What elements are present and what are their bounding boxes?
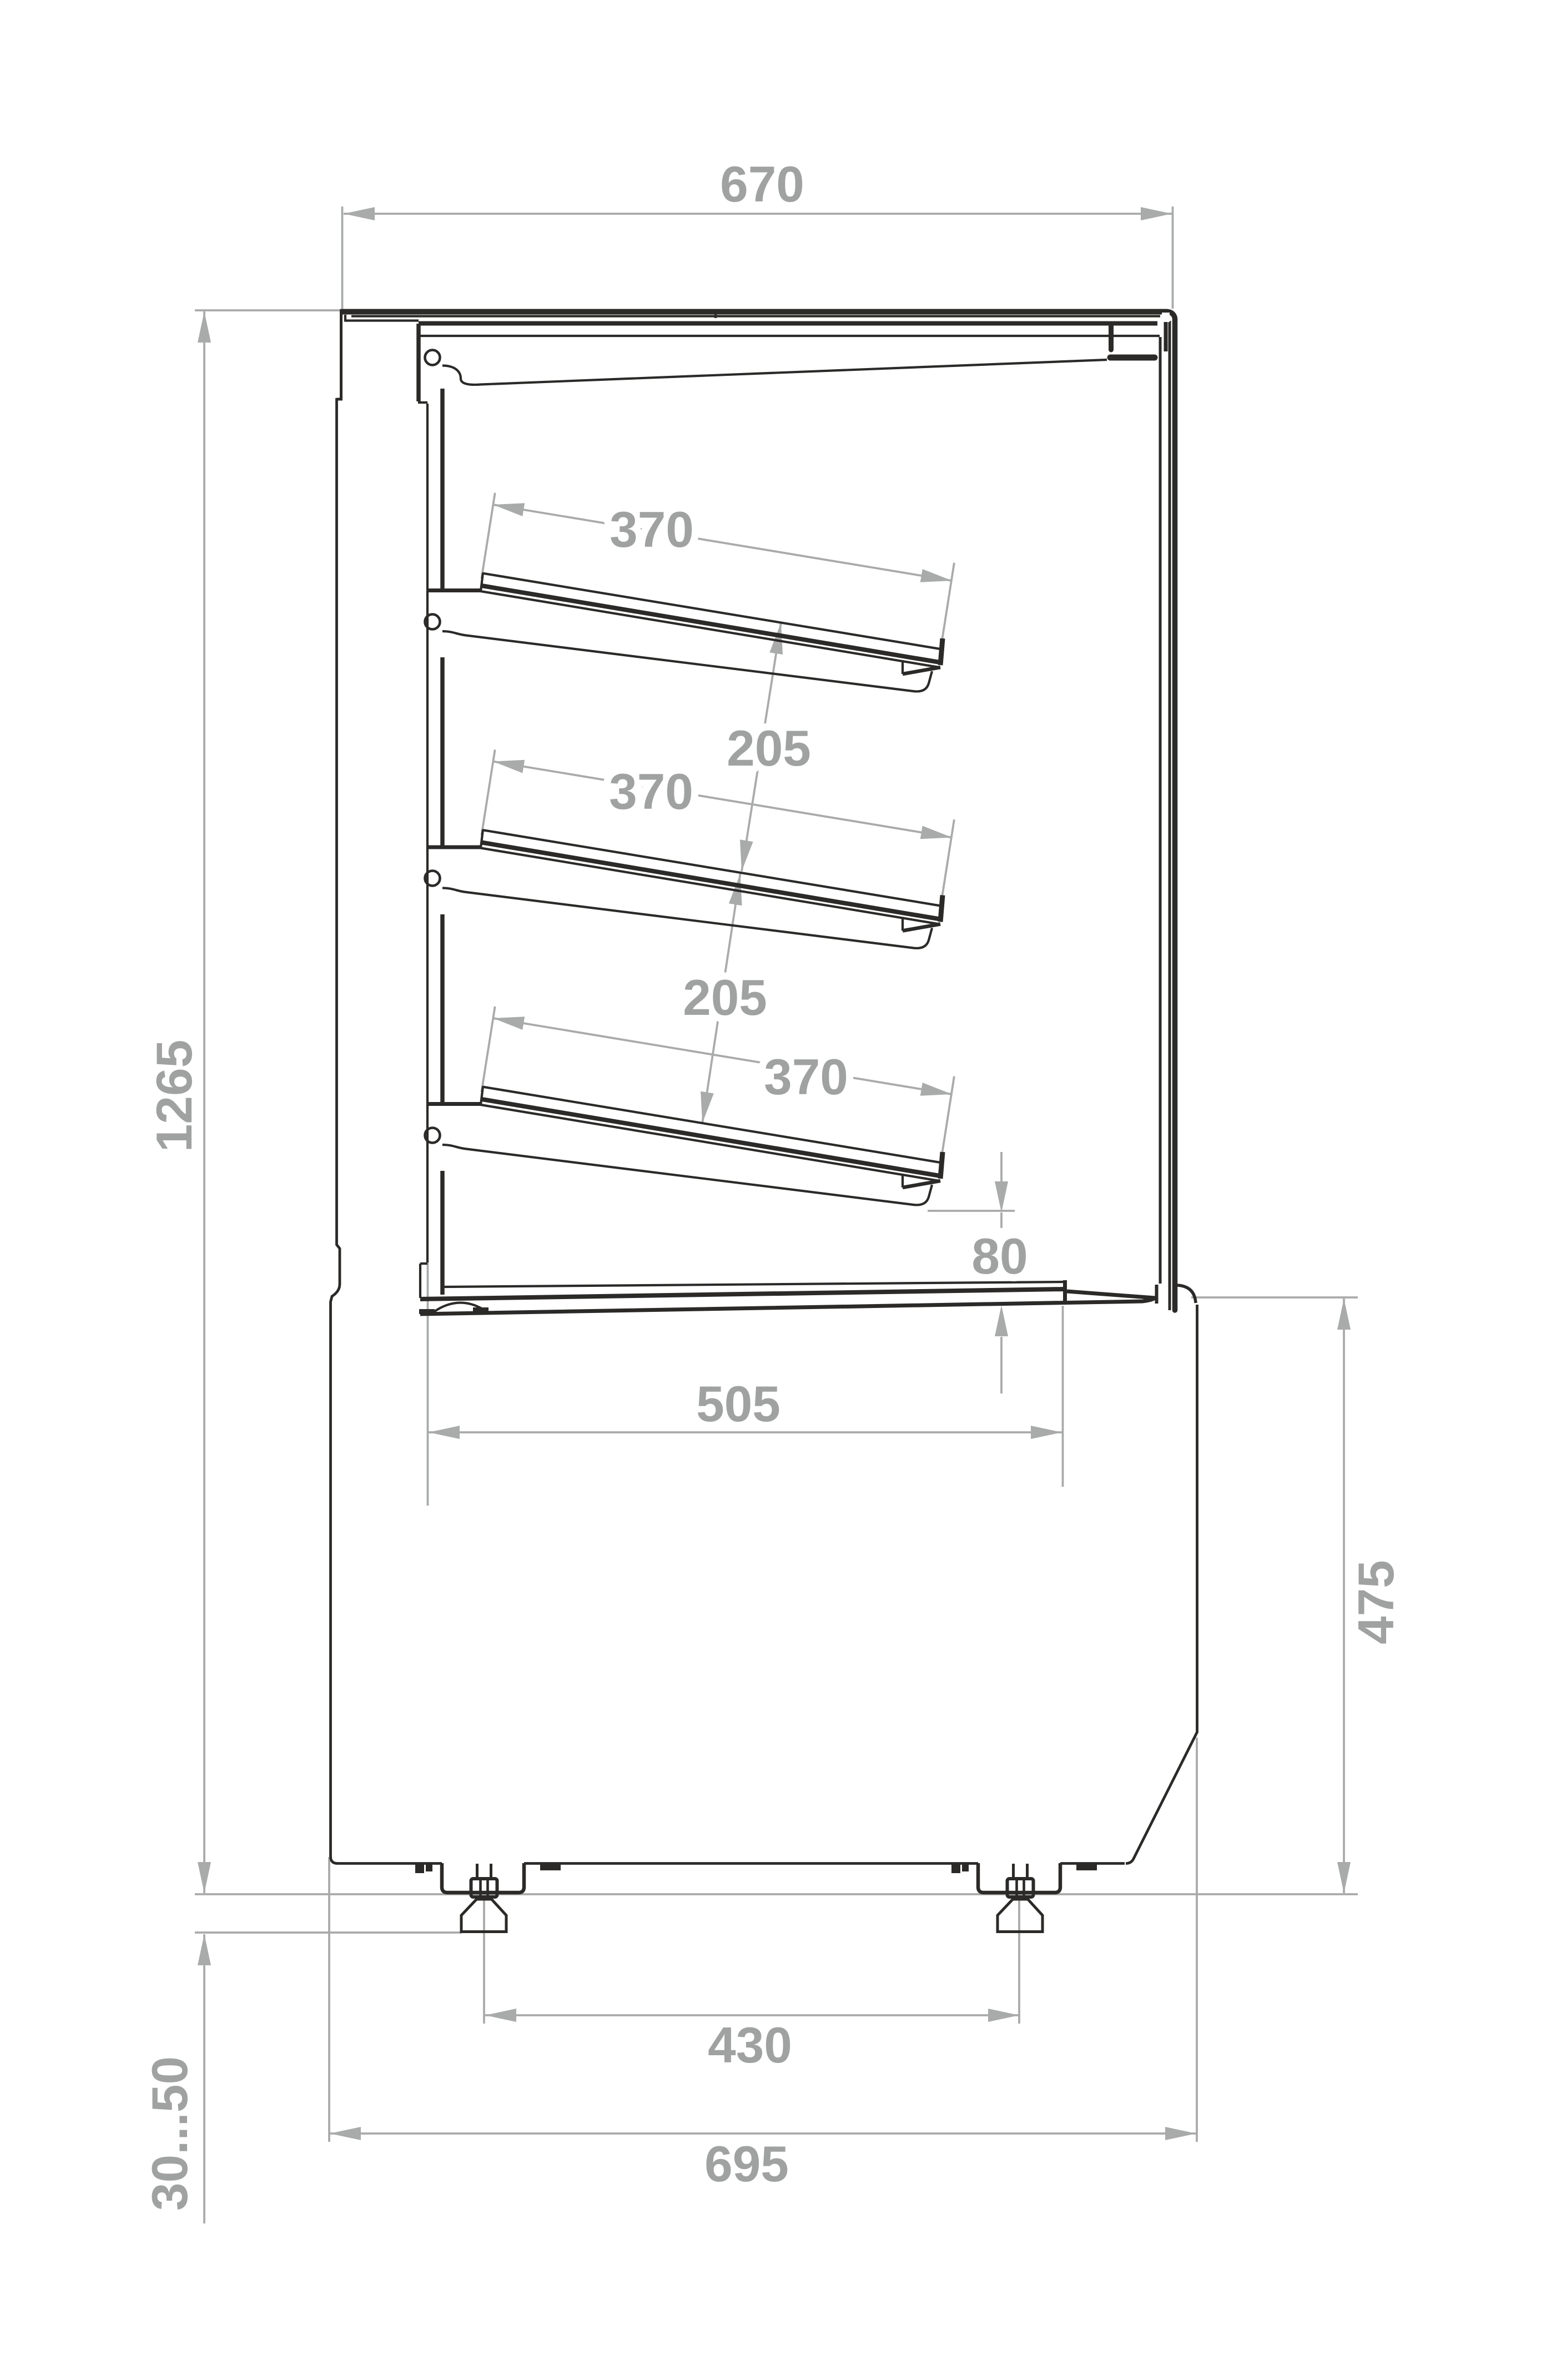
svg-text:370: 370 xyxy=(610,502,694,558)
svg-text:475: 475 xyxy=(1348,1560,1404,1644)
svg-text:205: 205 xyxy=(727,721,811,777)
svg-text:370: 370 xyxy=(609,764,693,820)
svg-text:80: 80 xyxy=(971,1229,1028,1285)
svg-text:370: 370 xyxy=(764,1049,848,1105)
svg-text:30...50: 30...50 xyxy=(142,2056,198,2211)
svg-text:205: 205 xyxy=(683,970,767,1026)
svg-text:505: 505 xyxy=(696,1376,780,1432)
svg-text:670: 670 xyxy=(720,157,804,213)
svg-text:430: 430 xyxy=(708,2017,792,2074)
svg-text:695: 695 xyxy=(704,2136,789,2192)
svg-text:1265: 1265 xyxy=(147,1040,203,1152)
